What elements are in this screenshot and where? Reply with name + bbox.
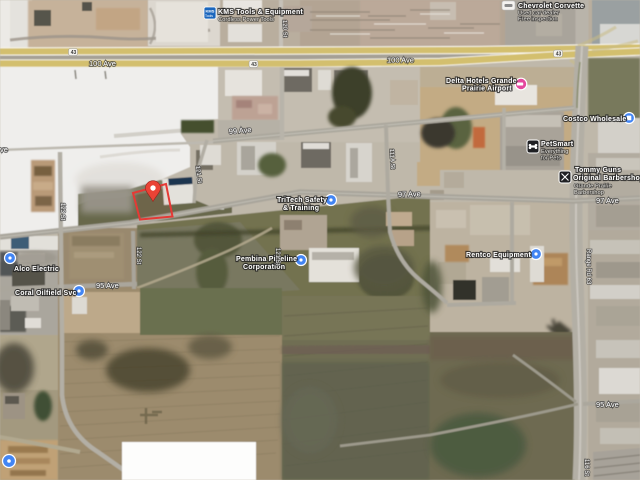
svg-text:123 St: 123 St [59,203,65,221]
svg-text:95 Ave: 95 Ave [96,281,119,290]
svg-text:121 St: 121 St [274,248,280,266]
svg-text:Cordless Power Tools: Cordless Power Tools [218,17,274,23]
svg-text:97 Ave: 97 Ave [596,196,619,205]
svg-text:KMS Tools & Equipment: KMS Tools & Equipment [218,9,303,16]
svg-text:Delta Hotels Grande: Delta Hotels Grande [446,78,517,85]
svg-text:95 Ave: 95 Ave [596,400,619,409]
svg-text:Everything: Everything [541,149,568,155]
svg-text:Rentco Equipment: Rentco Equipment [466,252,532,259]
svg-text:KMS: KMS [206,9,215,14]
svg-text:Costco Wholesale: Costco Wholesale [563,116,627,123]
svg-text:100 Ave: 100 Ave [387,56,414,65]
svg-text:43: 43 [251,62,257,68]
svg-text:Free inspection: Free inspection [518,17,558,23]
svg-text:TriTech Safety: TriTech Safety [277,197,327,204]
svg-text:43: 43 [71,50,77,56]
svg-text:PetSmart: PetSmart [541,141,574,148]
svg-text:Coral Oilfield Svc: Coral Oilfield Svc [15,290,77,297]
svg-text:43: 43 [556,52,562,58]
svg-text:Prairie Airport: Prairie Airport [462,86,512,93]
svg-text:116 St: 116 St [583,459,589,476]
svg-text:Grande Prairie: Grande Prairie [574,184,612,190]
svg-text:for Pets: for Pets [541,156,561,162]
svg-text:100 Ave: 100 Ave [89,59,116,68]
svg-text:Chevrolet Corvette: Chevrolet Corvette [518,3,584,10]
svg-text:120 St: 120 St [281,20,288,38]
svg-text:Pembina Pipeline: Pembina Pipeline [236,256,297,263]
svg-text:Alco Electric: Alco Electric [14,266,59,273]
svg-text:97 Ave: 97 Ave [398,189,421,199]
svg-text:Tommy Guns: Tommy Guns [575,167,621,174]
svg-text:111A St: 111A St [388,149,395,170]
svg-text:122 St: 122 St [135,247,141,265]
svg-text:Original Barbershop: Original Barbershop [573,175,640,182]
svg-text:Range Rd 63: Range Rd 63 [585,249,591,285]
svg-text:Tools: Tools [205,14,213,18]
svg-text:ve: ve [0,145,8,154]
svg-text:& Training: & Training [283,205,319,212]
